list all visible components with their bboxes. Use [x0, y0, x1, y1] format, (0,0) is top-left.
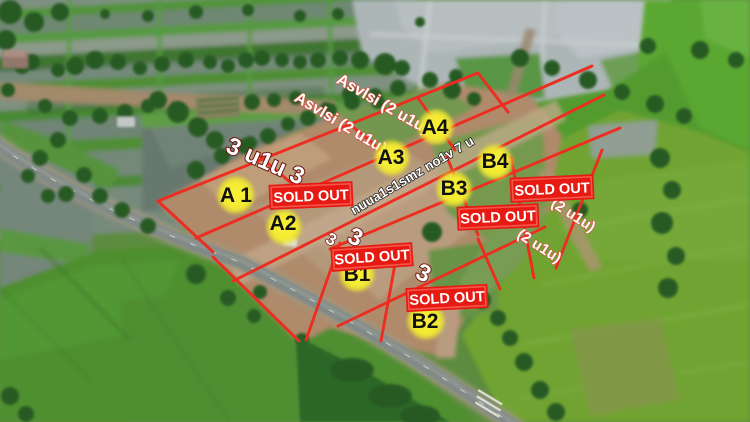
svg-text:SOLD OUT: SOLD OUT — [460, 208, 536, 227]
svg-text:SOLD OUT: SOLD OUT — [514, 180, 590, 199]
svg-text:A 1: A 1 — [220, 184, 252, 207]
svg-text:B2: B2 — [412, 310, 439, 333]
svg-text:B3: B3 — [441, 177, 468, 200]
svg-text:A4: A4 — [422, 116, 449, 139]
svg-text:SOLD OUT: SOLD OUT — [273, 187, 349, 206]
svg-text:A3: A3 — [378, 146, 405, 169]
svg-text:B4: B4 — [482, 150, 509, 173]
svg-text:A2: A2 — [270, 212, 297, 235]
